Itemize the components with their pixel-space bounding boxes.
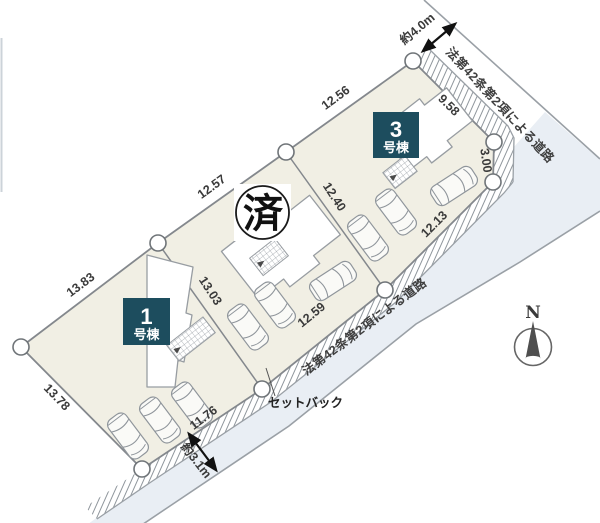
boundary-marker bbox=[134, 461, 150, 477]
boundary-marker bbox=[405, 53, 421, 69]
site-plan-canvas: 13.83 12.57 12.56 9.58 3.00 12.13 12.59 … bbox=[0, 0, 600, 523]
sold-badge: 済 bbox=[234, 184, 291, 241]
compass-needle-base bbox=[526, 356, 541, 361]
badge-building-1-number: 1 bbox=[140, 304, 152, 329]
boundary-marker bbox=[254, 381, 270, 397]
badge-building-3-number: 3 bbox=[390, 117, 402, 142]
road-width-label-north: 約4.0m bbox=[397, 10, 438, 48]
boundary-marker bbox=[278, 144, 294, 160]
setback-label: セットバック bbox=[268, 396, 343, 410]
badge-building-1-suffix: 号棟 bbox=[133, 327, 160, 342]
compass-north-label: N bbox=[525, 303, 541, 323]
boundary-marker bbox=[377, 282, 393, 298]
boundary-marker bbox=[13, 339, 29, 355]
compass-needle-icon bbox=[526, 321, 541, 359]
badge-building-3: 3 号棟 bbox=[373, 112, 419, 158]
boundary-marker bbox=[485, 174, 501, 190]
boundary-marker bbox=[150, 235, 166, 251]
badge-building-1: 1 号棟 bbox=[123, 298, 170, 345]
site-plan: 13.83 12.57 12.56 9.58 3.00 12.13 12.59 … bbox=[0, 0, 600, 523]
badge-building-3-suffix: 号棟 bbox=[383, 140, 410, 155]
compass: N bbox=[515, 303, 552, 366]
sold-badge-text: 済 bbox=[243, 192, 284, 236]
